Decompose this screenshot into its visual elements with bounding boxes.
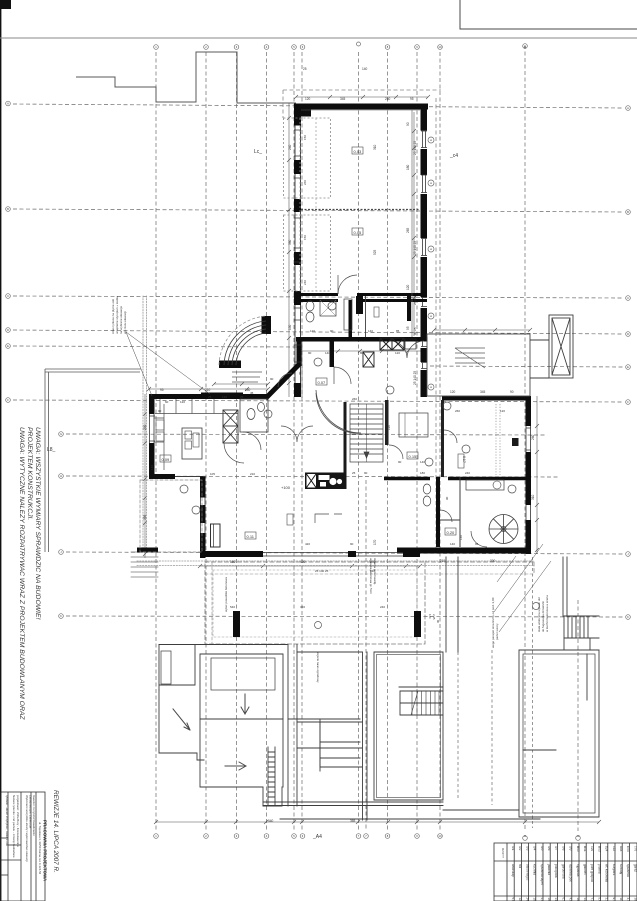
svg-text:9,40: 9,40 xyxy=(612,898,616,901)
svg-text:2,45: 2,45 xyxy=(432,614,436,620)
svg-text:korytarz: korytarz xyxy=(612,864,616,876)
svg-text:REWIZJE 14. LIPCA 2007 R.: REWIZJE 14. LIPCA 2007 R. xyxy=(52,790,59,873)
svg-text:90: 90 xyxy=(308,351,312,355)
svg-text:7,20: 7,20 xyxy=(590,898,594,901)
svg-text:170: 170 xyxy=(373,539,377,545)
svg-text:Lc_: Lc_ xyxy=(254,149,262,155)
svg-text:E: E xyxy=(627,365,629,369)
svg-text:0.09: 0.09 xyxy=(162,457,171,462)
svg-text:16,8: 16,8 xyxy=(576,898,580,901)
svg-text:120: 120 xyxy=(428,614,432,619)
svg-text:PRACOWNIA PROJEKTOWA: PRACOWNIA PROJEKTOWA xyxy=(43,820,48,882)
svg-text:schody: schody xyxy=(619,864,623,875)
svg-text:w: w xyxy=(430,386,432,389)
svg-text:jadalnia: jadalnia xyxy=(547,863,551,875)
svg-text:B05: B05 xyxy=(576,846,580,852)
svg-text:85: 85 xyxy=(396,329,400,333)
svg-text:kuchnia: kuchnia xyxy=(533,864,537,875)
svg-text:90: 90 xyxy=(270,377,274,381)
svg-text:90: 90 xyxy=(510,390,514,394)
svg-text:wc kotlownia: wc kotlownia xyxy=(605,864,609,882)
svg-text:0/7: 0/7 xyxy=(554,846,558,851)
svg-text:25 140 25: 25 140 25 xyxy=(413,241,417,255)
svg-text:D: D xyxy=(627,332,629,336)
svg-text:UWAGA: WSZYSTKIE WYMIARY SPRAW: UWAGA: WSZYSTKIE WYMIARY SPRAWDZIC NA BU… xyxy=(34,427,41,620)
svg-text:gabinet: gabinet xyxy=(583,864,587,875)
svg-text:D: D xyxy=(7,328,9,332)
svg-text:120: 120 xyxy=(406,284,410,290)
svg-text:260: 260 xyxy=(531,434,535,440)
svg-text:parter wzory: parter wzory xyxy=(495,623,499,640)
svg-text:300: 300 xyxy=(490,559,496,563)
svg-text:A: A xyxy=(627,106,629,110)
svg-text:wiatrolap: wiatrolap xyxy=(511,864,515,877)
svg-text:90: 90 xyxy=(158,409,162,413)
svg-text:B: B xyxy=(627,210,629,214)
svg-text:6,10: 6,10 xyxy=(561,898,565,901)
svg-text:540: 540 xyxy=(230,605,235,609)
svg-text:0/3: 0/3 xyxy=(525,846,529,851)
svg-text:0.05: 0.05 xyxy=(354,230,363,235)
svg-text:215: 215 xyxy=(440,559,446,563)
svg-text:120: 120 xyxy=(395,351,400,355)
svg-text:25 140 25: 25 140 25 xyxy=(413,371,417,385)
svg-text:hol: hol xyxy=(518,864,522,869)
svg-text:180: 180 xyxy=(420,471,425,475)
svg-text:90: 90 xyxy=(350,542,354,546)
svg-text:240: 240 xyxy=(380,605,385,609)
svg-text:garderoba: garderoba xyxy=(561,864,565,879)
svg-text:spizarnia tapet: spizarnia tapet xyxy=(540,864,544,885)
svg-text:290: 290 xyxy=(143,424,147,430)
svg-text:25: 25 xyxy=(240,395,244,399)
svg-text:25 140 25: 25 140 25 xyxy=(413,141,417,155)
svg-text:150: 150 xyxy=(303,235,307,240)
svg-text:+100: +100 xyxy=(281,485,291,490)
svg-text:38,7: 38,7 xyxy=(633,898,637,901)
svg-text:4,30: 4,30 xyxy=(626,898,630,901)
svg-text:Nazwa rysunku: rzut parteru -: Nazwa rysunku: rzut parteru - zmiany bud… xyxy=(12,795,16,858)
svg-text:zejscie taras ogrodowy: zejscie taras ogrodowy xyxy=(316,652,320,683)
svg-text:pralnia: pralnia xyxy=(597,864,601,874)
svg-text:4,95: 4,95 xyxy=(569,898,573,901)
svg-text:projektowal : Zofia Bury - Kon: projektowal : Zofia Bury - Konsekwentna xyxy=(16,795,20,847)
svg-text:345: 345 xyxy=(340,97,346,101)
svg-text:0/6: 0/6 xyxy=(547,846,551,851)
svg-text:265: 265 xyxy=(406,227,410,233)
svg-text:310: 310 xyxy=(373,144,377,150)
svg-text:PROJEKTEM KONSTRUKCJI.: PROJEKTEM KONSTRUKCJI. xyxy=(26,427,33,520)
svg-text:525: 525 xyxy=(373,249,377,255)
svg-text:95: 95 xyxy=(475,542,479,546)
svg-text:0/9: 0/9 xyxy=(569,846,573,851)
svg-text:0.03: 0.03 xyxy=(354,149,363,154)
svg-text:E: E xyxy=(7,344,9,348)
svg-text:18,6: 18,6 xyxy=(547,898,551,901)
svg-text:c20: c20 xyxy=(590,846,594,851)
svg-text:5,05: 5,05 xyxy=(511,898,515,901)
svg-text:K: K xyxy=(627,615,629,619)
svg-text:60: 60 xyxy=(165,400,169,404)
svg-text:120: 120 xyxy=(310,329,315,333)
svg-text:140: 140 xyxy=(368,329,373,333)
svg-text:140: 140 xyxy=(222,395,227,399)
svg-text:240: 240 xyxy=(288,144,292,150)
svg-text:95: 95 xyxy=(406,326,410,330)
svg-text:0/4: 0/4 xyxy=(533,846,537,851)
svg-text:25: 25 xyxy=(208,395,212,399)
svg-text:A: A xyxy=(7,102,9,106)
svg-text:RZUTY: RZUTY xyxy=(501,848,505,858)
svg-text:sypialnia: sypialnia xyxy=(576,864,580,877)
svg-text:120: 120 xyxy=(500,409,505,413)
svg-text:pokojowa: pokojowa xyxy=(554,864,558,878)
svg-text:260: 260 xyxy=(385,97,391,101)
svg-text:L8_: L8_ xyxy=(47,447,56,453)
svg-text:w: w xyxy=(430,139,432,142)
svg-text:15,2: 15,2 xyxy=(533,898,537,901)
svg-text:11,2: 11,2 xyxy=(619,898,623,901)
svg-text:90: 90 xyxy=(406,122,410,126)
svg-text:420: 420 xyxy=(305,542,310,546)
svg-text:5,60: 5,60 xyxy=(597,898,601,901)
svg-text:345: 345 xyxy=(480,390,486,394)
svg-text:lazienka pok: lazienka pok xyxy=(569,864,573,882)
svg-text:25: 25 xyxy=(303,67,307,71)
svg-text:310: 310 xyxy=(531,494,535,500)
svg-text:150: 150 xyxy=(288,324,292,330)
svg-text:c70: c70 xyxy=(633,846,637,851)
svg-text:C: C xyxy=(7,294,9,298)
svg-text:0.20: 0.20 xyxy=(447,530,456,535)
svg-text:140: 140 xyxy=(362,67,368,71)
svg-text:140: 140 xyxy=(450,542,455,546)
svg-text:garaz: garaz xyxy=(633,864,637,872)
svg-text:K: K xyxy=(60,614,62,618)
svg-text:140: 140 xyxy=(459,535,463,540)
svg-text:_A4: _A4 xyxy=(312,834,322,840)
svg-text:160: 160 xyxy=(230,560,236,564)
svg-text:90 25: 90 25 xyxy=(413,327,417,335)
svg-text:240: 240 xyxy=(465,471,470,475)
svg-text:spizarnia: spizarnia xyxy=(626,864,630,877)
svg-text:Zabudowa gm. Zabierzow: Zabudowa gm. Zabierzow xyxy=(29,795,33,829)
svg-text:24,1: 24,1 xyxy=(525,898,529,901)
svg-text:_c4: _c4 xyxy=(449,153,458,159)
svg-text:0.15: 0.15 xyxy=(409,454,418,459)
svg-text:385: 385 xyxy=(143,514,147,520)
svg-text:c22: c22 xyxy=(612,846,616,851)
svg-text:260: 260 xyxy=(455,409,460,413)
svg-text:w kuchni betonowa a scena: w kuchni betonowa a scena xyxy=(545,595,549,632)
svg-text:0/5: 0/5 xyxy=(540,846,544,851)
svg-text:120: 120 xyxy=(305,97,311,101)
svg-text:0.07: 0.07 xyxy=(318,380,327,385)
svg-text:90: 90 xyxy=(436,620,440,624)
svg-text:25 140: 25 140 xyxy=(413,295,417,305)
svg-text:120: 120 xyxy=(180,400,185,404)
svg-text:0/8: 0/8 xyxy=(561,846,565,851)
svg-text:Inwestor: Krzysztof Dawidowski: Inwestor: Krzysztof Dawidowski xyxy=(32,795,36,836)
svg-text:380: 380 xyxy=(288,239,292,245)
svg-text:90: 90 xyxy=(398,460,402,464)
svg-text:540: 540 xyxy=(268,819,274,823)
svg-text:45: 45 xyxy=(250,391,254,395)
svg-text:120: 120 xyxy=(387,425,391,430)
svg-text:90: 90 xyxy=(364,471,368,475)
svg-text:25: 25 xyxy=(352,471,356,475)
svg-text:90: 90 xyxy=(330,329,334,333)
svg-text:pom gospod: pom gospod xyxy=(590,864,594,882)
svg-text:B03: B03 xyxy=(597,846,601,852)
svg-text:0.11: 0.11 xyxy=(247,534,255,539)
svg-text:260: 260 xyxy=(303,180,307,185)
svg-text:B: B xyxy=(7,207,9,211)
svg-text:140: 140 xyxy=(150,465,154,470)
svg-text:140: 140 xyxy=(325,351,330,355)
svg-text:wylac posadzke betonowa: wylac posadzke betonowa xyxy=(224,577,228,612)
svg-text:H: H xyxy=(60,474,62,478)
svg-text:0.17: 0.17 xyxy=(462,456,466,463)
svg-text:420: 420 xyxy=(300,560,306,564)
svg-text:25 140 25: 25 140 25 xyxy=(200,506,204,520)
svg-text:80: 80 xyxy=(360,351,364,355)
svg-text:90: 90 xyxy=(445,496,449,500)
svg-text:w: w xyxy=(430,315,432,318)
svg-text:0/1: 0/1 xyxy=(511,846,515,851)
svg-text:150: 150 xyxy=(303,135,307,140)
svg-text:240: 240 xyxy=(303,280,307,285)
svg-text:14,2: 14,2 xyxy=(554,898,558,901)
svg-text:Wykonano wszystkie atesty i wy: Wykonano wszystkie atesty i wykonawstwo … xyxy=(25,795,29,862)
svg-text:b24: b24 xyxy=(605,846,609,852)
svg-text:wg rzutu elewacji: wg rzutu elewacji xyxy=(123,311,127,334)
svg-text:3,80: 3,80 xyxy=(540,898,544,901)
svg-text:12,4: 12,4 xyxy=(518,898,522,901)
svg-text:180: 180 xyxy=(406,164,410,170)
svg-text:320: 320 xyxy=(300,605,305,609)
svg-text:120: 120 xyxy=(450,390,456,394)
svg-text:0/2: 0/2 xyxy=(518,846,522,851)
svg-text:105: 105 xyxy=(210,472,215,476)
svg-text:140: 140 xyxy=(370,569,375,573)
svg-text:3,15: 3,15 xyxy=(605,898,609,901)
svg-text:E50: E50 xyxy=(626,846,630,852)
svg-text:B01: B01 xyxy=(583,846,587,852)
svg-text:C: C xyxy=(627,296,629,300)
svg-text:210: 210 xyxy=(205,388,211,392)
svg-text:95: 95 xyxy=(410,97,414,101)
svg-text:a33: a33 xyxy=(619,846,623,852)
svg-text:240: 240 xyxy=(370,560,376,564)
svg-text:95: 95 xyxy=(160,388,164,392)
svg-text:365: 365 xyxy=(350,819,356,823)
svg-text:25 140 25: 25 140 25 xyxy=(315,569,329,573)
svg-text:13,1: 13,1 xyxy=(583,898,587,901)
svg-text:w: w xyxy=(430,182,432,185)
svg-text:210: 210 xyxy=(250,472,255,476)
svg-text:salon wejsc: salon wejsc xyxy=(525,864,529,881)
svg-text:260: 260 xyxy=(352,397,357,401)
svg-text:ul. Topolowa 1, 30/50 Kalina,: ul. Topolowa 1, 30/50 Kalina, tel. 0-124… xyxy=(38,822,42,875)
svg-text:rysowal : Jakub Przybylski ; s: rysowal : Jakub Przybylski ; skala 1:100 xyxy=(5,795,9,846)
svg-text:140: 140 xyxy=(420,460,425,464)
svg-text:90: 90 xyxy=(298,371,302,375)
svg-text:UWAGA: WYTYCZNE NALEZY ROZPATR: UWAGA: WYTYCZNE NALEZY ROZPATRYWAC WRAZ … xyxy=(18,427,25,720)
svg-text:w: w xyxy=(430,248,432,251)
svg-text:G: G xyxy=(60,432,62,436)
